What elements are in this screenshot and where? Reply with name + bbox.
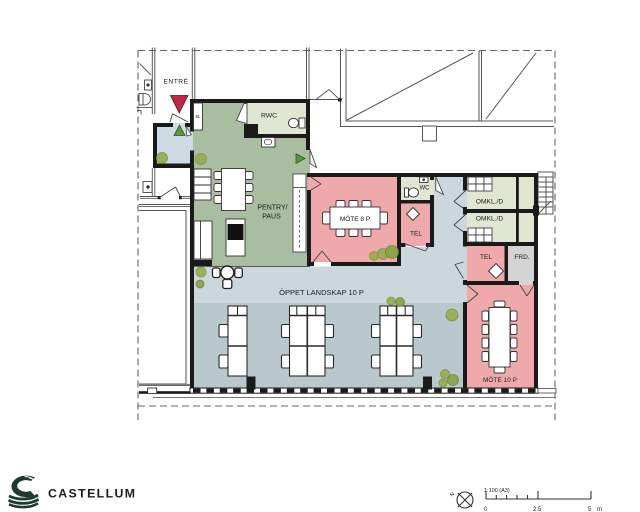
svg-text:PENTRY/: PENTRY/ [257, 205, 287, 212]
svg-text:ENTRÉ: ENTRÉ [163, 77, 188, 86]
svg-text:FRD.: FRD. [514, 254, 529, 261]
svg-text:1:100 (A3): 1:100 (A3) [484, 488, 510, 494]
svg-text:TEL: TEL [480, 254, 492, 261]
svg-text:m: m [597, 507, 602, 512]
svg-text:TEL: TEL [410, 231, 422, 238]
svg-text:CASTELLUM: CASTELLUM [48, 487, 136, 501]
svg-text:ÖPPET LANDSKAP 10 P: ÖPPET LANDSKAP 10 P [279, 288, 364, 297]
svg-text:MÖTE 10 P: MÖTE 10 P [483, 376, 517, 384]
svg-text:MÖTE 8 P: MÖTE 8 P [340, 215, 370, 223]
svg-text:RWC: RWC [261, 113, 277, 120]
svg-text:WC: WC [420, 186, 431, 192]
svg-text:OMKL./D: OMKL./D [476, 199, 504, 206]
svg-text:OMKL./D: OMKL./D [476, 216, 504, 223]
svg-text:PAUS: PAUS [262, 214, 281, 221]
svg-text:2.5: 2.5 [533, 507, 542, 512]
svg-text:EL: EL [195, 114, 201, 119]
